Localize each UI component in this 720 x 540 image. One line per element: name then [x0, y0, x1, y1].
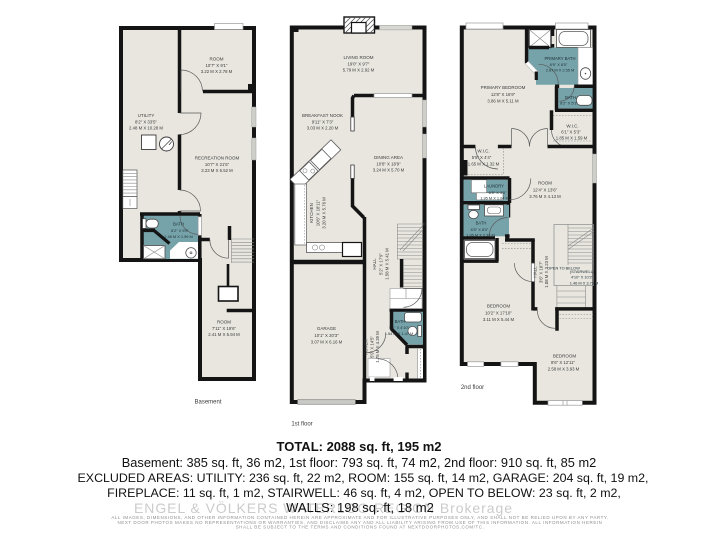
svg-text:3.86 M X 5.11 M: 3.86 M X 5.11 M: [487, 99, 519, 104]
svg-text:LIVING ROOM: LIVING ROOM: [343, 55, 373, 60]
svg-text:FIREPLACE: 11 sq. ft, 1 m2, ST: FIREPLACE: 11 sq. ft, 1 m2, STAIRWELL: 4…: [107, 486, 621, 500]
svg-text:BEDROOM: BEDROOM: [487, 304, 511, 309]
svg-text:BEDROOM: BEDROOM: [553, 354, 577, 359]
svg-text:HALL: HALL: [533, 266, 538, 278]
svg-text:W.I.C.: W.I.C.: [566, 124, 578, 129]
svg-text:3.11 M X 5.44 M: 3.11 M X 5.44 M: [483, 317, 515, 322]
svg-text:BATH: BATH: [173, 222, 184, 227]
svg-text:6'5" X 8'0": 6'5" X 8'0": [471, 227, 489, 232]
svg-text:UTILITY: UTILITY: [138, 113, 155, 118]
svg-text:3.23 M X 6.52 M: 3.23 M X 6.52 M: [201, 168, 233, 173]
svg-text:5.79 M X 2.92 M: 5.79 M X 2.92 M: [343, 68, 375, 73]
svg-text:WALLS: 198 sq. ft, 18 m2: WALLS: 198 sq. ft, 18 m2: [286, 500, 434, 515]
svg-text:8'2" X 5'1": 8'2" X 5'1": [560, 101, 578, 106]
svg-text:HALL: HALL: [372, 258, 377, 270]
svg-text:GARAGE: GARAGE: [317, 326, 336, 331]
svg-text:10'7" X 9'1": 10'7" X 9'1": [206, 63, 228, 68]
svg-text:BREAKFAST NOOK: BREAKFAST NOOK: [302, 113, 343, 118]
svg-text:2.48 M X 10.28 M: 2.48 M X 10.28 M: [129, 126, 163, 131]
svg-text:8'9" X 8'5": 8'9" X 8'5": [550, 62, 568, 67]
svg-text:3'6" X 10'7": 3'6" X 10'7": [539, 261, 544, 283]
svg-text:1st floor: 1st floor: [291, 422, 312, 428]
svg-text:EXCLUDED AREAS: UTILITY: 236 s: EXCLUDED AREAS: UTILITY: 236 sq. ft, 22 …: [78, 471, 649, 485]
svg-text:5'5" X 4'4": 5'5" X 4'4": [472, 155, 492, 160]
svg-text:2.67 M X 2.55 M: 2.67 M X 2.55 M: [546, 68, 575, 73]
svg-text:KITCHEN: KITCHEN: [309, 203, 314, 223]
svg-text:10'1" X 20'3": 10'1" X 20'3": [314, 333, 339, 338]
svg-text:PRIMARY BATH: PRIMARY BATH: [545, 56, 576, 61]
svg-text:3.20 M X 5.76 M: 3.20 M X 5.76 M: [322, 197, 327, 229]
svg-text:3.24 M X 5.70 M: 3.24 M X 5.70 M: [373, 168, 405, 173]
svg-text:3.76 M X 4.13 M: 3.76 M X 4.13 M: [529, 194, 561, 199]
svg-text:2.58 M X 3.93 M: 2.58 M X 3.93 M: [548, 367, 580, 372]
svg-text:3.07 M X 6.16 M: 3.07 M X 6.16 M: [311, 340, 343, 345]
svg-text:1.65 M X 1.32 M: 1.65 M X 1.32 M: [468, 162, 500, 167]
svg-text:3.03 M X 2.20 M: 3.03 M X 2.20 M: [307, 126, 339, 131]
svg-text:3.22 M X 2.78 M: 3.22 M X 2.78 M: [201, 69, 233, 74]
svg-text:8'6" X 12'11": 8'6" X 12'11": [551, 360, 575, 365]
svg-text:6'1" X 5'3": 6'1" X 5'3": [561, 130, 581, 135]
svg-text:LAUNDRY: LAUNDRY: [484, 184, 504, 189]
svg-text:12'4" X 13'6": 12'4" X 13'6": [533, 188, 558, 193]
svg-text:2.48 M X 1.99 M: 2.48 M X 1.99 M: [164, 234, 193, 239]
svg-text:1.54 M X 1.47 M: 1.54 M X 1.47 M: [385, 331, 414, 336]
svg-text:6'2" X 5'9": 6'2" X 5'9": [171, 228, 189, 233]
svg-text:FOYER: FOYER: [364, 339, 369, 355]
svg-text:1.46 M X 3.73 M: 1.46 M X 3.73 M: [570, 281, 599, 286]
svg-text:BATH: BATH: [565, 95, 576, 100]
svg-text:ROOM: ROOM: [210, 57, 224, 62]
svg-text:1.95 M X 1.04 M: 1.95 M X 1.04 M: [480, 196, 509, 201]
svg-text:W.I.C.: W.I.C.: [477, 149, 489, 154]
svg-text:10'7" X 21'5": 10'7" X 21'5": [205, 162, 230, 167]
svg-text:BATH: BATH: [395, 319, 406, 324]
svg-text:ROOM: ROOM: [217, 320, 231, 325]
svg-text:12'8" X 16'9": 12'8" X 16'9": [491, 92, 516, 97]
svg-text:5'2" X 17'9": 5'2" X 17'9": [379, 253, 384, 275]
svg-text:9'11" X 7'3": 9'11" X 7'3": [312, 120, 334, 125]
svg-text:Basement: 385 sq. ft, 36 m2, 1: Basement: 385 sq. ft, 36 m2, 1st floor: …: [122, 455, 596, 470]
svg-text:RECREATION ROOM: RECREATION ROOM: [195, 156, 240, 161]
svg-text:1.75 M X 4.39 M: 1.75 M X 4.39 M: [375, 331, 380, 363]
svg-text:5'9" X 14'5": 5'9" X 14'5": [370, 336, 375, 358]
svg-text:PRIMARY BEDROOM: PRIMARY BEDROOM: [481, 85, 526, 90]
svg-text:1.58 M X 5.41 M: 1.58 M X 5.41 M: [385, 248, 390, 280]
svg-text:8'2" X 33'5": 8'2" X 33'5": [135, 120, 157, 125]
svg-text:2nd floor: 2nd floor: [461, 385, 484, 391]
svg-text:4'10" X 10'2": 4'10" X 10'2": [571, 274, 594, 279]
svg-text:2.41 M X 5.94 M: 2.41 M X 5.94 M: [208, 332, 240, 337]
svg-text:1.08 M X 3.23 M: 1.08 M X 3.23 M: [544, 256, 549, 288]
svg-text:7'11" X 19'6": 7'11" X 19'6": [212, 326, 236, 331]
svg-text:Basement: Basement: [194, 400, 221, 406]
svg-text:ROOM: ROOM: [538, 181, 552, 186]
svg-text:TOTAL: 2088 sq. ft, 195 m2: TOTAL: 2088 sq. ft, 195 m2: [277, 439, 442, 454]
svg-text:1.85 M X 1.59 M: 1.85 M X 1.59 M: [556, 136, 588, 141]
svg-text:SHALL BE SUBJECT TO THE TERMS: SHALL BE SUBJECT TO THE TERMS AND CONDIT…: [236, 525, 485, 530]
svg-text:BATH: BATH: [476, 221, 487, 226]
svg-text:10'6" X 18'11": 10'6" X 18'11": [316, 199, 321, 226]
svg-text:6'5" X 3'5": 6'5" X 3'5": [489, 190, 507, 195]
svg-text:5'1" X 4'10": 5'1" X 4'10": [389, 325, 409, 330]
svg-text:DINING AREA: DINING AREA: [374, 155, 403, 160]
svg-text:19'0" X 9'7": 19'0" X 9'7": [348, 62, 370, 67]
svg-text:10'8" X 18'9": 10'8" X 18'9": [376, 162, 401, 167]
svg-text:10'2" X 17'10": 10'2" X 17'10": [485, 311, 512, 316]
